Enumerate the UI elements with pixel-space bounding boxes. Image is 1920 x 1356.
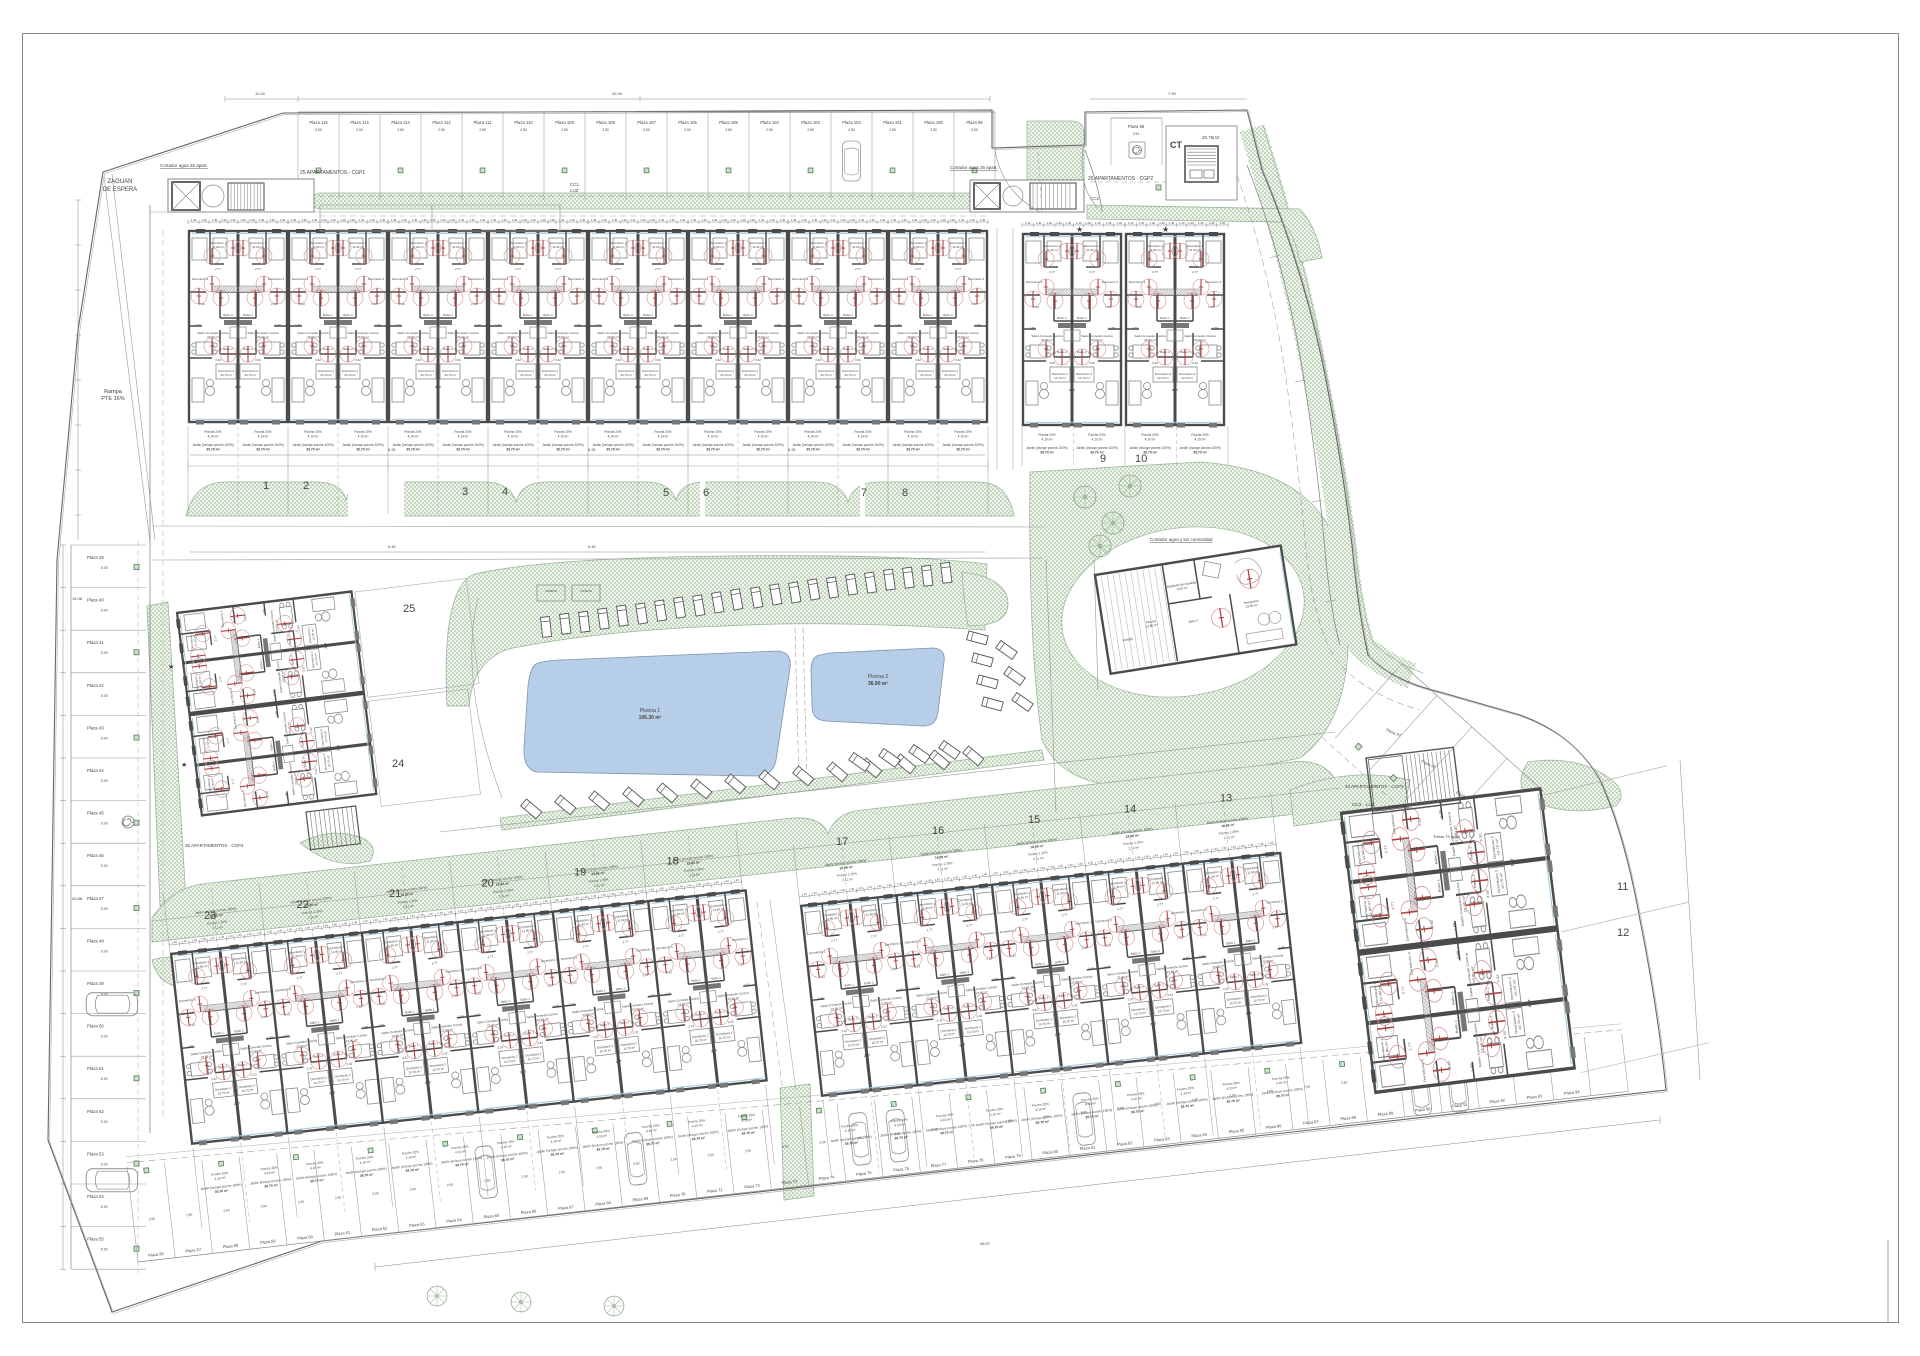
svg-text:2.50: 2.50	[596, 1166, 603, 1171]
svg-text:6.31: 6.31	[388, 447, 397, 452]
svg-text:2.50: 2.50	[1341, 1080, 1348, 1085]
svg-text:22: 22	[297, 899, 309, 911]
svg-text:Plaza 98: Plaza 98	[1128, 124, 1145, 129]
svg-text:1: 1	[263, 480, 269, 492]
svg-text:2.50: 2.50	[684, 128, 691, 132]
svg-text:2.11 m²: 2.11 m²	[1128, 845, 1139, 850]
svg-text:20: 20	[482, 877, 494, 889]
svg-text:24: 24	[392, 758, 404, 770]
svg-text:14: 14	[1124, 803, 1136, 815]
svg-text:40 APARTAMENTOS - CGP3: 40 APARTAMENTOS - CGP3	[1345, 784, 1404, 789]
svg-text:Cortador agua y luz comunidad: Cortador agua y luz comunidad	[1150, 537, 1213, 542]
svg-text:8: 8	[902, 487, 908, 499]
svg-text:11: 11	[1617, 881, 1628, 893]
svg-text:Trésto 75 apart: Trésto 75 apart	[1433, 834, 1461, 839]
svg-text:2.50: 2.50	[558, 1170, 565, 1175]
svg-text:Plaza 88: Plaza 88	[1340, 1114, 1357, 1121]
svg-text:46.57: 46.57	[980, 1241, 991, 1246]
svg-text:Plaza 93: Plaza 93	[1526, 1093, 1543, 1100]
svg-text:CASETA: CASETA	[580, 589, 592, 593]
svg-text:42.04: 42.04	[612, 91, 623, 96]
svg-text:Plaza 50: Plaza 50	[87, 1024, 104, 1029]
svg-text:3: 3	[462, 486, 468, 498]
svg-text:11.04: 11.04	[255, 91, 265, 96]
svg-text:Plaza 112: Plaza 112	[432, 120, 451, 125]
svg-text:Plaza 64: Plaza 64	[446, 1217, 463, 1224]
svg-text:2.50: 2.50	[409, 1187, 416, 1192]
svg-text:2.50: 2.50	[745, 1149, 752, 1154]
svg-text:CT: CT	[1170, 140, 1182, 150]
svg-text:2.50: 2.50	[670, 1157, 677, 1162]
svg-text:Plaza 46: Plaza 46	[87, 853, 104, 858]
svg-text:Plaza 76: Plaza 76	[893, 1166, 910, 1173]
svg-text:5.00: 5.00	[101, 1205, 108, 1209]
svg-text:2.50: 2.50	[372, 1191, 379, 1196]
svg-text:10: 10	[1135, 453, 1147, 465]
svg-text:18.86 m²: 18.86 m²	[1125, 833, 1140, 839]
svg-text:Plaza 41: Plaza 41	[87, 640, 104, 645]
svg-text:Plaza 100: Plaza 100	[924, 120, 943, 125]
svg-text:ZAGUAN: ZAGUAN	[107, 179, 132, 185]
svg-text:5: 5	[663, 487, 669, 499]
svg-text:2.50: 2.50	[930, 128, 937, 132]
svg-text:13: 13	[1220, 792, 1232, 804]
svg-text:Plaza 99: Plaza 99	[966, 120, 983, 125]
svg-text:2.50: 2.50	[782, 1144, 789, 1149]
svg-text:Plaza 39: Plaza 39	[87, 555, 104, 560]
svg-text:Plaza 114: Plaza 114	[350, 120, 369, 125]
svg-text:2.50: 2.50	[725, 128, 732, 132]
svg-text:7: 7	[861, 487, 867, 499]
svg-text:★: ★	[1162, 225, 1169, 234]
svg-text:2.50: 2.50	[484, 1178, 491, 1183]
svg-text:15.08: 15.08	[72, 596, 83, 601]
svg-text:15: 15	[1028, 814, 1040, 826]
svg-text:Piscina 2: Piscina 2	[868, 674, 889, 680]
svg-text:Plaza 105: Plaza 105	[719, 120, 738, 125]
svg-text:Plaza 48: Plaza 48	[87, 938, 104, 943]
svg-text:Rampa: Rampa	[104, 389, 123, 395]
svg-text:2.50: 2.50	[479, 128, 486, 132]
svg-text:Plaza 74: Plaza 74	[819, 1174, 836, 1181]
svg-text:5.00: 5.00	[101, 736, 108, 740]
svg-text:Piscina 1: Piscina 1	[640, 708, 661, 714]
svg-text:Plaza 62: Plaza 62	[372, 1225, 389, 1232]
svg-text:2.50: 2.50	[397, 128, 404, 132]
svg-text:2.50: 2.50	[889, 128, 896, 132]
svg-text:Plaza 86: Plaza 86	[1266, 1123, 1283, 1130]
svg-text:Plaza 107: Plaza 107	[637, 120, 656, 125]
svg-text:25 APARTAMENTOS - CGP1: 25 APARTAMENTOS - CGP1	[300, 170, 365, 176]
svg-text:Plaza 92: Plaza 92	[1489, 1097, 1506, 1104]
svg-text:2.50: 2.50	[438, 128, 445, 132]
svg-text:★: ★	[181, 761, 187, 769]
svg-text:Plaza 45: Plaza 45	[87, 811, 104, 816]
svg-text:Plaza 79: Plaza 79	[1005, 1153, 1022, 1160]
svg-text:Plaza 44: Plaza 44	[87, 768, 104, 773]
svg-text:26 APARTAMENTOS - CGP2: 26 APARTAMENTOS - CGP2	[1088, 176, 1153, 182]
svg-text:2.50: 2.50	[223, 1208, 230, 1213]
svg-text:2.50: 2.50	[561, 128, 568, 132]
svg-text:Plaza 115: Plaza 115	[309, 120, 328, 125]
svg-text:2.50: 2.50	[335, 1195, 342, 1200]
svg-text:CC3: CC3	[1352, 802, 1361, 807]
svg-text:Plaza 71: Plaza 71	[707, 1187, 724, 1194]
svg-text:2.50: 2.50	[968, 1123, 975, 1128]
svg-text:18.86 m²: 18.86 m²	[935, 854, 950, 860]
svg-text:Plaza 53: Plaza 53	[87, 1151, 104, 1156]
svg-text:2.11 m²: 2.11 m²	[1033, 856, 1044, 861]
svg-text:2.50: 2.50	[520, 128, 527, 132]
svg-text:23: 23	[204, 910, 216, 922]
svg-text:CC1: CC1	[570, 182, 579, 187]
svg-text:Plaza 47: Plaza 47	[87, 896, 104, 901]
svg-text:Plaza 56: Plaza 56	[148, 1251, 165, 1258]
svg-text:Plaza 101: Plaza 101	[883, 120, 902, 125]
svg-text:4: 4	[502, 486, 508, 498]
svg-text:Plaza 77: Plaza 77	[930, 1161, 947, 1168]
svg-text:Plaza 87: Plaza 87	[1303, 1119, 1320, 1126]
svg-text:5.00: 5.00	[101, 1162, 108, 1166]
svg-text:Plaza 94: Plaza 94	[1564, 1089, 1581, 1096]
svg-text:7.90: 7.90	[1168, 91, 1177, 96]
svg-text:5.00: 5.00	[101, 694, 108, 698]
svg-text:21: 21	[389, 888, 401, 900]
svg-text:5.00: 5.00	[101, 864, 108, 868]
svg-text:2.50: 2.50	[643, 128, 650, 132]
svg-text:5.00: 5.00	[101, 907, 108, 911]
svg-text:Plaza 70: Plaza 70	[670, 1191, 687, 1198]
svg-text:LUZ: LUZ	[570, 188, 579, 193]
svg-text:Plaza 57: Plaza 57	[185, 1247, 202, 1254]
svg-text:Plaza 84: Plaza 84	[1191, 1132, 1208, 1139]
svg-text:Plaza 102: Plaza 102	[842, 120, 861, 125]
svg-text:Plaza 43: Plaza 43	[87, 725, 104, 730]
svg-text:Plaza 60: Plaza 60	[297, 1234, 314, 1241]
svg-text:5.00: 5.00	[101, 779, 108, 783]
svg-text:20.88: 20.88	[72, 896, 83, 901]
svg-text:2.50: 2.50	[971, 128, 978, 132]
svg-text:20,75m2: 20,75m2	[1202, 135, 1220, 140]
svg-text:9: 9	[1100, 453, 1106, 465]
svg-text:Plaza 75: Plaza 75	[856, 1170, 873, 1177]
svg-text:Plaza 103: Plaza 103	[801, 120, 820, 125]
svg-text:Plaza 69: Plaza 69	[632, 1196, 649, 1203]
svg-text:Plaza 109: Plaza 109	[555, 120, 574, 125]
svg-text:Plaza 54: Plaza 54	[87, 1194, 104, 1199]
svg-text:19: 19	[574, 866, 586, 878]
svg-text:18.86 m²: 18.86 m²	[839, 865, 854, 871]
svg-text:2.50: 2.50	[315, 128, 322, 132]
svg-text:PTE 16%: PTE 16%	[101, 396, 124, 402]
svg-text:36 APARTAMENTOS - CGP4: 36 APARTAMENTOS - CGP4	[185, 843, 244, 848]
svg-text:Plaza 83: Plaza 83	[1154, 1136, 1171, 1143]
svg-text:2.50: 2.50	[848, 128, 855, 132]
svg-text:18: 18	[667, 856, 679, 868]
svg-text:2.11 m²: 2.11 m²	[937, 867, 948, 872]
svg-text:Plaza 55: Plaza 55	[87, 1237, 104, 1242]
svg-text:5.00: 5.00	[101, 949, 108, 953]
svg-text:2.50: 2.50	[602, 128, 609, 132]
svg-text:6.40: 6.40	[388, 544, 397, 549]
svg-text:36.90 m²: 36.90 m²	[868, 681, 888, 687]
svg-text:Plaza 65: Plaza 65	[483, 1213, 500, 1220]
svg-text:Plaza 63: Plaza 63	[409, 1221, 426, 1228]
svg-text:3.51: 3.51	[1133, 132, 1140, 136]
svg-text:5.00: 5.00	[101, 1120, 108, 1124]
svg-text:Plaza 68: Plaza 68	[595, 1200, 612, 1207]
svg-text:2.50: 2.50	[633, 1161, 640, 1166]
svg-text:25: 25	[403, 603, 415, 615]
svg-text:Plaza 52: Plaza 52	[87, 1109, 104, 1114]
svg-text:2.50: 2.50	[521, 1174, 528, 1179]
svg-text:2.50: 2.50	[356, 128, 363, 132]
svg-text:Plaza 42: Plaza 42	[87, 683, 104, 688]
svg-text:Plaza 58: Plaza 58	[222, 1242, 239, 1249]
svg-text:2: 2	[303, 480, 309, 492]
svg-text:5.00: 5.00	[101, 822, 108, 826]
svg-text:Cortador agua 26 apart.: Cortador agua 26 apart.	[160, 163, 208, 168]
svg-text:2.50: 2.50	[807, 128, 814, 132]
svg-text:LUZ: LUZ	[1366, 802, 1375, 807]
svg-text:5.00: 5.00	[101, 1077, 108, 1081]
svg-text:2.11 m²: 2.11 m²	[842, 877, 853, 882]
svg-text:Plaza 113: Plaza 113	[391, 120, 410, 125]
svg-text:5.00: 5.00	[101, 566, 108, 570]
svg-text:2.50: 2.50	[186, 1213, 193, 1218]
svg-text:2.50: 2.50	[149, 1217, 156, 1222]
svg-text:Plaza 78: Plaza 78	[968, 1157, 985, 1164]
svg-text:DE ESPERA: DE ESPERA	[103, 187, 137, 193]
svg-text:6: 6	[703, 487, 709, 499]
svg-text:Plaza 66: Plaza 66	[521, 1208, 538, 1215]
svg-text:2.50: 2.50	[298, 1200, 305, 1205]
svg-text:CASETA: CASETA	[545, 589, 557, 593]
svg-text:★: ★	[168, 663, 174, 671]
svg-text:Plaza 108: Plaza 108	[596, 120, 615, 125]
svg-text:12: 12	[1617, 927, 1629, 939]
svg-text:5.00: 5.00	[101, 651, 108, 655]
svg-text:16: 16	[932, 825, 944, 837]
svg-text:106.30 m²: 106.30 m²	[639, 715, 662, 721]
svg-text:2.50: 2.50	[260, 1204, 267, 1209]
svg-text:Plaza 40: Plaza 40	[87, 598, 104, 603]
svg-text:2.50: 2.50	[447, 1183, 454, 1188]
svg-text:Plaza 97: Plaza 97	[1385, 727, 1402, 738]
svg-text:5.00: 5.00	[101, 1248, 108, 1252]
svg-text:Plaza 89: Plaza 89	[1377, 1110, 1394, 1117]
svg-text:2.50: 2.50	[707, 1153, 714, 1158]
svg-text:Plaza 51: Plaza 51	[87, 1066, 104, 1071]
svg-text:Plaza 61: Plaza 61	[334, 1230, 351, 1237]
svg-text:Plaza 82: Plaza 82	[1117, 1140, 1134, 1147]
svg-text:Plaza 104: Plaza 104	[760, 120, 779, 125]
svg-text:Plaza 110: Plaza 110	[514, 120, 533, 125]
svg-text:17: 17	[836, 836, 848, 848]
svg-text:5.00: 5.00	[101, 609, 108, 613]
svg-text:Plaza 59: Plaza 59	[260, 1238, 277, 1245]
svg-text:Plaza 80: Plaza 80	[1042, 1149, 1059, 1156]
svg-text:2.11 m²: 2.11 m²	[1224, 835, 1235, 840]
svg-text:18.86 m²: 18.86 m²	[1030, 844, 1045, 850]
svg-text:★: ★	[1076, 225, 1083, 234]
svg-text:5.00: 5.00	[101, 1035, 108, 1039]
svg-text:6.31: 6.31	[588, 447, 597, 452]
svg-text:Plaza 111: Plaza 111	[473, 120, 492, 125]
svg-text:18.86 m²: 18.86 m²	[1221, 823, 1236, 829]
svg-text:6.31: 6.31	[788, 447, 797, 452]
svg-text:Plaza 67: Plaza 67	[558, 1204, 575, 1211]
svg-text:Plaza 72: Plaza 72	[744, 1183, 761, 1190]
svg-text:Cortador agua 26 apart.: Cortador agua 26 apart.	[950, 165, 998, 170]
svg-text:Plaza 106: Plaza 106	[678, 120, 697, 125]
svg-text:6.40: 6.40	[588, 544, 597, 549]
svg-text:2.50: 2.50	[766, 128, 773, 132]
svg-text:Plaza 49: Plaza 49	[87, 981, 104, 986]
svg-text:Plaza 85: Plaza 85	[1228, 1127, 1245, 1134]
svg-text:2.50: 2.50	[819, 1140, 826, 1145]
